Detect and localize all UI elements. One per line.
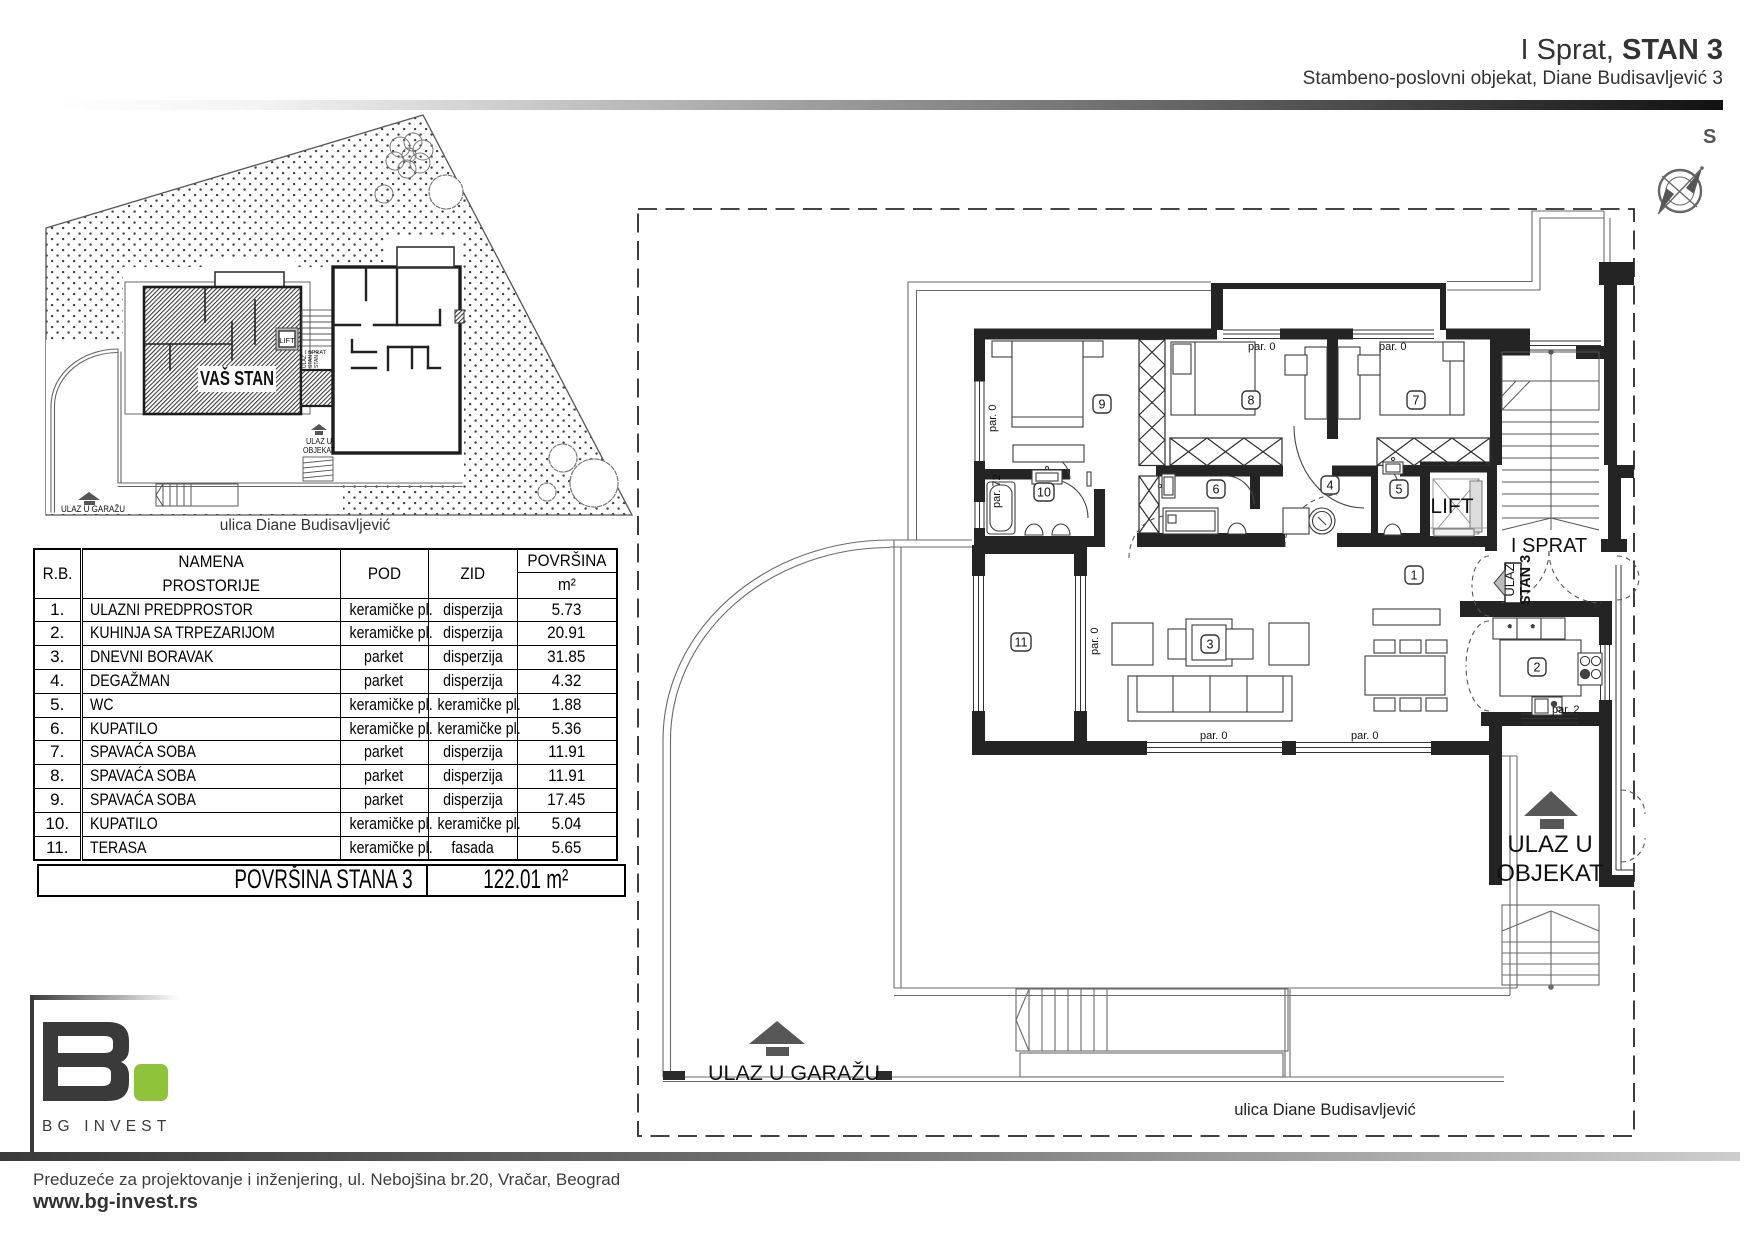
svg-text:STAN 3: STAN 3 — [1518, 555, 1534, 606]
svg-text:VAŠ STAN: VAŠ STAN — [200, 366, 274, 390]
svg-text:OBJEKAT: OBJEKAT — [303, 446, 335, 455]
svg-text:I SPRAT: I SPRAT — [1511, 535, 1587, 557]
svg-text:par. 2: par. 2 — [1552, 704, 1580, 716]
svg-text:par. 0: par. 0 — [1379, 341, 1407, 353]
svg-text:*: * — [1508, 623, 1512, 633]
svg-text:6: 6 — [1213, 483, 1220, 497]
svg-text:5: 5 — [1396, 483, 1403, 497]
svg-text:ULAZ U GARAŽU: ULAZ U GARAŽU — [61, 504, 125, 514]
svg-text:10: 10 — [1037, 486, 1051, 500]
svg-text:S: S — [1703, 126, 1716, 148]
svg-text:7: 7 — [1413, 394, 1420, 408]
svg-text:8: 8 — [1248, 394, 1255, 408]
svg-text:2: 2 — [1534, 661, 1541, 675]
svg-text:par. 0: par. 0 — [987, 404, 999, 432]
svg-text:ulica Diane Budisavljević: ulica Diane Budisavljević — [220, 517, 391, 534]
svg-text:BG INVEST: BG INVEST — [42, 1118, 171, 1135]
svg-text:ULAZ U: ULAZ U — [1507, 831, 1592, 858]
svg-text:4: 4 — [1327, 479, 1334, 493]
svg-text:ulica Diane Budisavljević: ulica Diane Budisavljević — [1234, 1101, 1416, 1119]
svg-text:11: 11 — [1015, 636, 1028, 650]
svg-text:ULAZ U GARAŽU: ULAZ U GARAŽU — [708, 1060, 880, 1085]
svg-text:ULAZ U: ULAZ U — [306, 437, 332, 446]
svg-text:OBJEKAT: OBJEKAT — [1496, 860, 1604, 887]
svg-text:STAN 2: STAN 2 — [314, 351, 320, 368]
svg-text:par. 0: par. 0 — [1089, 627, 1101, 655]
svg-text:LIFT: LIFT — [1430, 495, 1473, 518]
svg-text:9: 9 — [1099, 398, 1106, 412]
svg-text:par. 0: par. 0 — [1351, 730, 1379, 742]
svg-text:1: 1 — [1411, 569, 1418, 583]
svg-text:par. 0: par. 0 — [1248, 341, 1276, 353]
svg-text:par. 0: par. 0 — [1200, 730, 1228, 742]
svg-text:*: * — [1531, 623, 1535, 633]
svg-text:LIFT: LIFT — [279, 336, 295, 345]
svg-text:3: 3 — [1207, 638, 1214, 652]
svg-text:par. 72: par. 72 — [991, 474, 1003, 508]
